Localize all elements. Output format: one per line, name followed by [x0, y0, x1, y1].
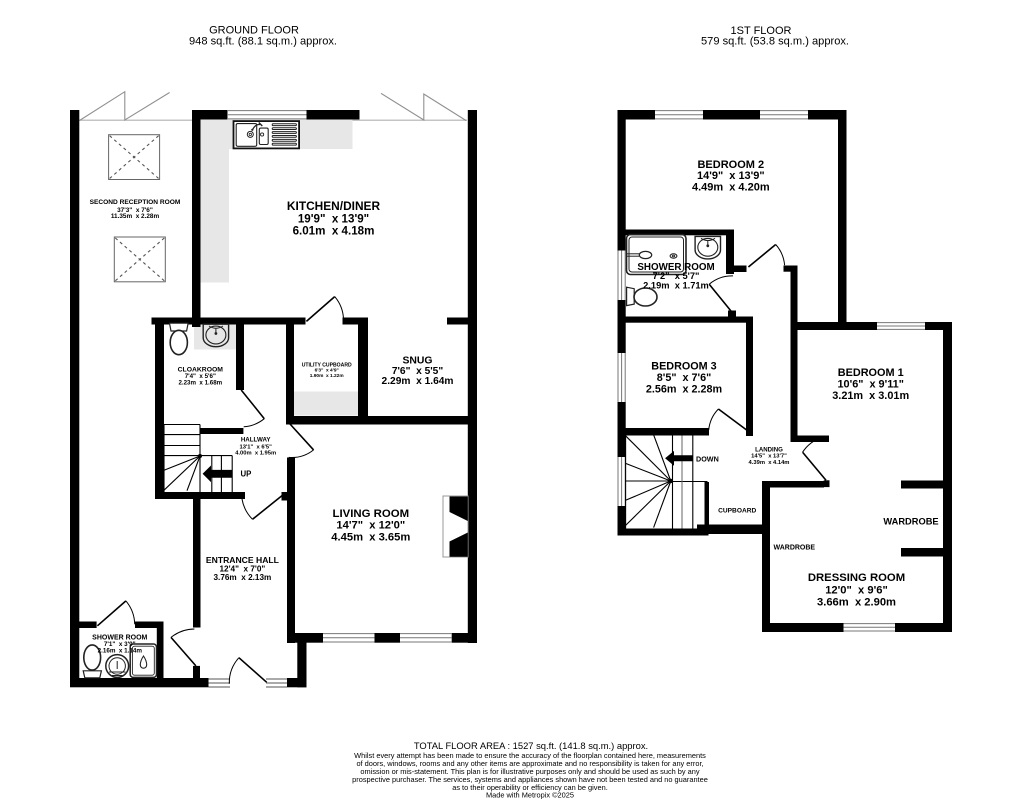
svg-text:579 sq.ft. (53.8 sq.m.) approx: 579 sq.ft. (53.8 sq.m.) approx. [701, 35, 849, 47]
svg-text:1.90m x 1.22m: 1.90m x 1.22m [310, 373, 344, 379]
svg-text:DRESSING ROOM: DRESSING ROOM [808, 572, 905, 584]
svg-text:10'6" x 9'11": 10'6" x 9'11" [838, 378, 904, 390]
svg-text:12'0" x 9'6": 12'0" x 9'6" [825, 584, 888, 596]
svg-text:14'7" x 12'0": 14'7" x 12'0" [336, 519, 405, 531]
svg-text:11.35m x 2.28m: 11.35m x 2.28m [111, 213, 160, 220]
svg-text:19'9" x 13'9": 19'9" x 13'9" [298, 212, 369, 225]
svg-text:WARDROBE: WARDROBE [773, 545, 815, 552]
svg-text:4.45m x 3.65m: 4.45m x 3.65m [331, 531, 410, 543]
svg-text:2.23m x 1.68m: 2.23m x 1.68m [178, 380, 222, 387]
svg-text:DOWN: DOWN [696, 454, 719, 463]
svg-text:8'5" x 7'6": 8'5" x 7'6" [657, 372, 711, 384]
svg-text:BEDROOM 1: BEDROOM 1 [838, 367, 904, 379]
svg-text:4.49m x 4.20m: 4.49m x 4.20m [692, 181, 770, 193]
svg-text:4.00m x 1.95m: 4.00m x 1.95m [235, 450, 276, 456]
svg-text:3.66m x 2.90m: 3.66m x 2.90m [817, 597, 896, 609]
svg-text:SECOND RECEPTION ROOM: SECOND RECEPTION ROOM [90, 199, 181, 206]
svg-text:Made with Metropix ©2025: Made with Metropix ©2025 [486, 791, 574, 800]
svg-text:2.29m x 1.64m: 2.29m x 1.64m [382, 376, 454, 387]
svg-text:KITCHEN/DINER: KITCHEN/DINER [287, 199, 381, 213]
svg-text:14'5" x 13'7": 14'5" x 13'7" [751, 453, 787, 459]
svg-text:UTILITY CUPBOARD: UTILITY CUPBOARD [302, 362, 352, 368]
svg-text:WARDROBE: WARDROBE [883, 517, 938, 527]
svg-text:3.76m x 2.13m: 3.76m x 2.13m [213, 573, 271, 582]
svg-text:6'3" x 4'9": 6'3" x 4'9" [315, 368, 339, 374]
svg-text:UP: UP [241, 470, 252, 479]
svg-text:LIVING ROOM: LIVING ROOM [333, 508, 410, 520]
svg-text:4.39m x 4.14m: 4.39m x 4.14m [749, 460, 790, 466]
svg-text:2.56m x 2.28m: 2.56m x 2.28m [646, 384, 722, 396]
svg-text:LANDING: LANDING [755, 446, 783, 453]
svg-text:ENTRANCE HALL: ENTRANCE HALL [206, 555, 279, 565]
svg-text:CUPBOARD: CUPBOARD [718, 507, 756, 514]
svg-text:3.21m x 3.01m: 3.21m x 3.01m [832, 390, 909, 402]
svg-text:6.01m x 4.18m: 6.01m x 4.18m [293, 225, 375, 238]
svg-text:BEDROOM 3: BEDROOM 3 [651, 361, 716, 373]
svg-text:948 sq.ft. (88.1 sq.m.) approx: 948 sq.ft. (88.1 sq.m.) approx. [189, 35, 337, 47]
svg-text:HALLWAY: HALLWAY [241, 436, 272, 443]
svg-text:2.19m x 1.71m: 2.19m x 1.71m [643, 280, 709, 290]
svg-text:2.16m x 1.14m: 2.16m x 1.14m [98, 647, 143, 654]
svg-text:14'9" x 13'9": 14'9" x 13'9" [697, 170, 765, 182]
svg-text:TOTAL FLOOR AREA : 1527 sq.ft.: TOTAL FLOOR AREA : 1527 sq.ft. (141.8 sq… [414, 740, 648, 751]
